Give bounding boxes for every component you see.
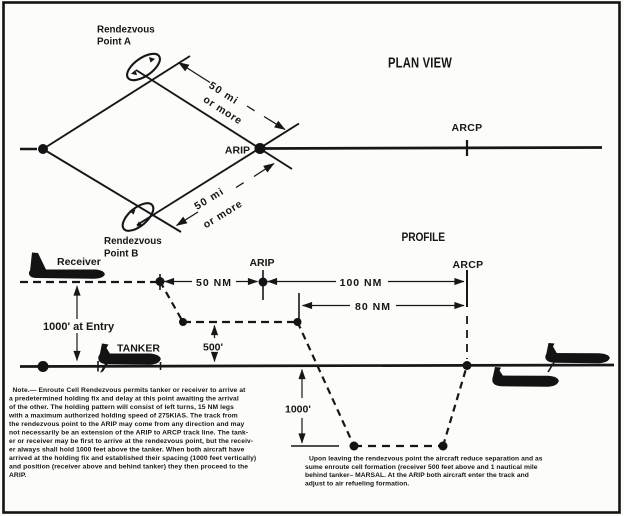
svg-text:500': 500': [203, 342, 223, 354]
svg-text:sume enroute cell formation (r: sume enroute cell formation (receiver 50…: [305, 464, 538, 471]
svg-text:er or receiver may be first to: er or receiver may be first to arrive at…: [9, 438, 253, 445]
svg-text:100 NM: 100 NM: [340, 277, 383, 289]
svg-text:Upon leaving the rendezvous po: Upon leaving the rendezvous point the ai…: [309, 456, 543, 463]
svg-text:a predetermined holding fix an: a predetermined holding fix and delay at…: [9, 396, 239, 403]
svg-text:Point B: Point B: [104, 249, 138, 260]
svg-text:er always shall hold 1000 feet: er always shall hold 1000 feet above the…: [9, 447, 245, 454]
svg-text:PLAN VIEW: PLAN VIEW: [388, 54, 452, 71]
svg-text:1000': 1000': [285, 404, 311, 416]
svg-text:ARCP: ARCP: [452, 122, 483, 134]
svg-text:with a maximum authorized hold: with a maximum authorized holding speed …: [8, 413, 238, 420]
svg-text:ARIP: ARIP: [225, 145, 250, 157]
svg-text:Note.— Enroute Cell Rendezvous: Note.— Enroute Cell Rendezvous permits t…: [13, 387, 247, 394]
svg-text:ARCP: ARCP: [453, 259, 484, 271]
svg-text:1000' at Entry: 1000' at Entry: [43, 321, 115, 333]
svg-text:the rendezvous point to the AR: the rendezvous point to the ARIP may com…: [9, 421, 245, 428]
svg-text:arrived at the holding fix and: arrived at the holding fix and establish…: [9, 455, 256, 462]
svg-text:50 NM: 50 NM: [196, 277, 232, 289]
svg-text:Rendezvous: Rendezvous: [97, 25, 155, 36]
svg-text:adjust to air refueling format: adjust to air refueling formation.: [305, 480, 409, 487]
svg-text:ARIP.: ARIP.: [9, 472, 27, 479]
svg-text:Point A: Point A: [97, 37, 131, 48]
svg-text:PROFILE: PROFILE: [402, 231, 445, 244]
svg-text:ARIP: ARIP: [249, 257, 274, 269]
svg-text:TANKER: TANKER: [117, 343, 160, 355]
svg-text:Receiver: Receiver: [57, 256, 101, 268]
svg-text:80 NM: 80 NM: [355, 301, 391, 313]
svg-text:and position (receiver above a: and position (receiver above and behind …: [9, 464, 248, 471]
svg-text:behind tanker– MARSAL. At the: behind tanker– MARSAL. At the ARIP both …: [305, 472, 529, 479]
svg-text:not necessarily be an extensio: not necessarily be an extension of the A…: [9, 430, 248, 437]
svg-text:Rendezvous: Rendezvous: [104, 236, 162, 247]
svg-text:of the other. The holding pat: of the other. The holding pattern will c…: [9, 404, 234, 411]
